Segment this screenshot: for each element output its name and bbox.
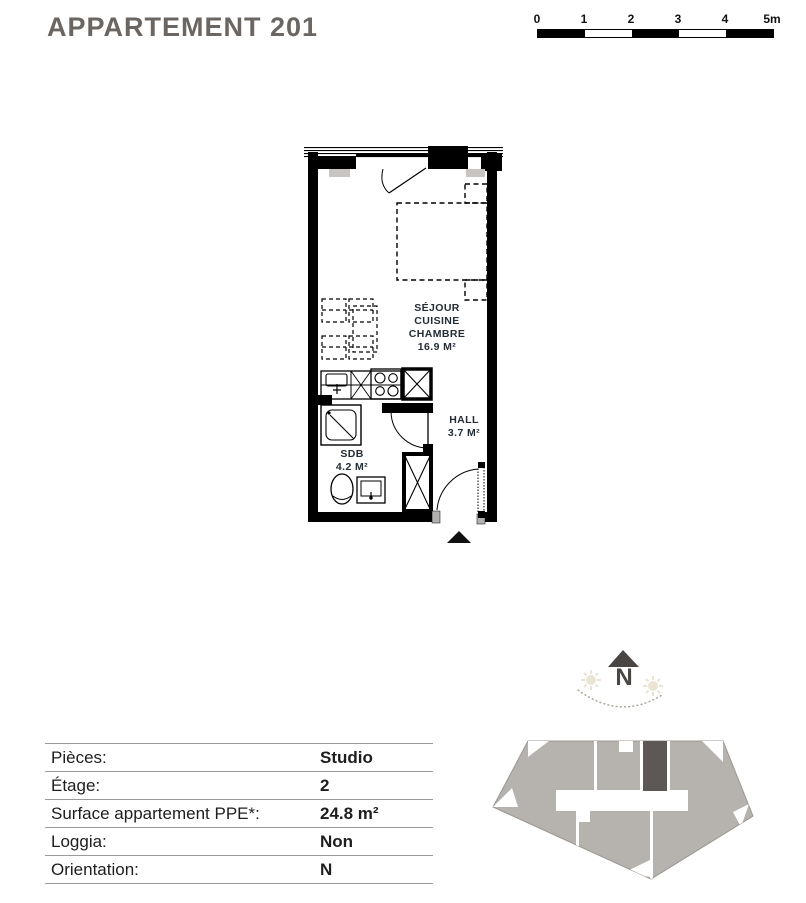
room-name: SDB xyxy=(312,448,392,461)
sun-icon xyxy=(643,676,663,696)
washbasin-icon xyxy=(357,477,385,503)
sink-icon xyxy=(326,374,347,394)
row-label: Orientation: xyxy=(51,856,139,883)
table-row: Orientation: N xyxy=(45,855,433,883)
dining-furniture xyxy=(322,299,377,359)
kitchen-counter xyxy=(321,369,401,399)
entrance-arrow-icon xyxy=(447,531,471,543)
bed-furniture xyxy=(397,184,487,300)
toilet-icon xyxy=(331,474,353,504)
row-label: Étage: xyxy=(51,772,100,799)
room-name: HALL xyxy=(424,414,504,427)
room-name: SÉJOUR xyxy=(377,302,497,315)
room-area: 3.7 M² xyxy=(424,427,504,440)
sun-path-arc xyxy=(578,690,662,707)
row-value: Studio xyxy=(320,744,373,771)
entrance-door xyxy=(432,462,485,524)
sdb-door-swing xyxy=(391,412,428,448)
row-label: Surface appartement PPE*: xyxy=(51,800,260,827)
shaft-lower xyxy=(404,454,431,511)
table-row: Pièces: Studio xyxy=(45,743,433,771)
row-value: 2 xyxy=(320,772,329,799)
sun-icon xyxy=(581,670,601,690)
north-label: N xyxy=(603,664,645,692)
shaft-upper xyxy=(403,369,431,399)
stove-icon xyxy=(371,369,401,399)
site-plan xyxy=(493,741,753,881)
balcony-door-swing xyxy=(382,168,426,193)
row-value: Non xyxy=(320,828,353,855)
row-label: Pièces: xyxy=(51,744,107,771)
room-label-sdb: SDB 4.2 M² xyxy=(312,448,392,474)
details-table: Pièces: Studio Étage: 2 Surface appartem… xyxy=(45,743,433,884)
room-name: CUISINE xyxy=(377,315,497,328)
table-row: Loggia: Non xyxy=(45,827,433,855)
row-value: N xyxy=(320,856,332,883)
room-name: CHAMBRE xyxy=(377,328,497,341)
floor-plan-page: APPARTEMENT 201 0 1 2 3 4 5m xyxy=(0,0,806,903)
room-label-hall: HALL 3.7 M² xyxy=(424,414,504,440)
highlighted-unit xyxy=(643,741,667,791)
shower-icon xyxy=(321,405,361,445)
room-label-sejour: SÉJOUR CUISINE CHAMBRE 16.9 M² xyxy=(377,302,497,354)
window-sill-stubs xyxy=(329,169,485,177)
table-row: Surface appartement PPE*: 24.8 m² xyxy=(45,799,433,827)
table-row: Étage: 2 xyxy=(45,771,433,799)
row-value: 24.8 m² xyxy=(320,800,379,827)
room-area: 16.9 M² xyxy=(377,341,497,354)
room-area: 4.2 M² xyxy=(312,461,392,474)
row-label: Loggia: xyxy=(51,828,107,855)
